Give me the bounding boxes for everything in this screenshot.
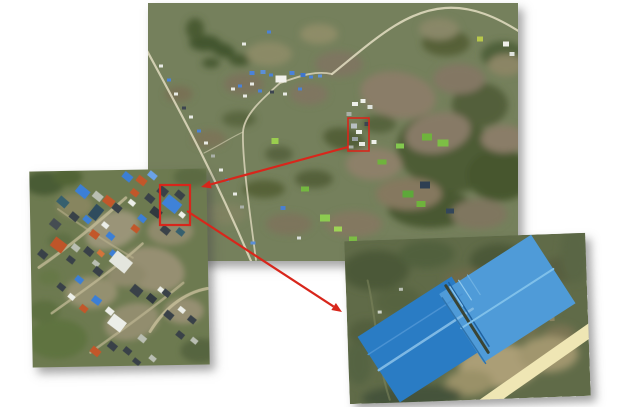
warehouse-zoom-inset-graphic <box>344 233 591 404</box>
village-zoom-inset <box>29 168 209 367</box>
village-zoom-inset-graphic <box>29 168 209 367</box>
figure-canvas <box>0 0 629 407</box>
warehouse-zoom-inset <box>344 233 591 404</box>
